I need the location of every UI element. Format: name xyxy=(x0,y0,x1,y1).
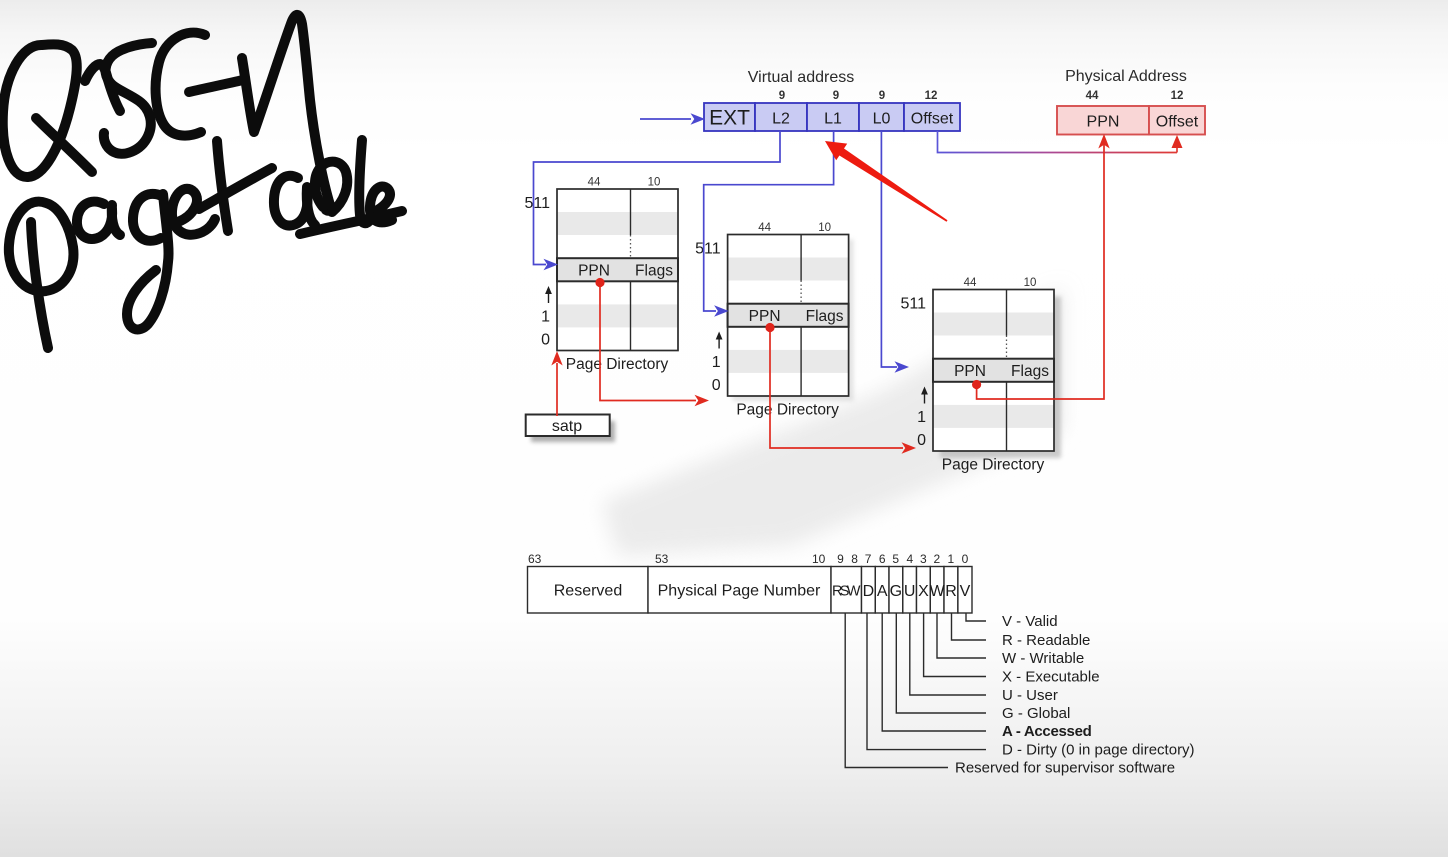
svg-text:X: X xyxy=(918,583,929,600)
svg-text:6: 6 xyxy=(879,552,886,566)
svg-text:Virtual address: Virtual address xyxy=(748,69,854,86)
svg-text:12: 12 xyxy=(1171,90,1184,102)
svg-text:U - User: U - User xyxy=(1002,687,1058,704)
svg-text:9: 9 xyxy=(779,90,785,102)
svg-text:G - Global: G - Global xyxy=(1002,705,1070,722)
svg-text:5: 5 xyxy=(892,552,899,566)
svg-text:Offset: Offset xyxy=(1156,114,1199,131)
svg-text:V - Valid: V - Valid xyxy=(1002,613,1058,630)
svg-text:U: U xyxy=(904,583,916,600)
svg-text:D - Dirty (0 in page directory: D - Dirty (0 in page directory) xyxy=(1002,742,1195,759)
svg-text:Reserved for supervisor softwa: Reserved for supervisor software xyxy=(955,760,1175,777)
svg-text:L0: L0 xyxy=(873,111,891,128)
svg-text:R: R xyxy=(945,583,957,600)
svg-text:L2: L2 xyxy=(772,111,790,128)
svg-text:3: 3 xyxy=(920,552,927,566)
svg-text:PPN: PPN xyxy=(1087,114,1120,131)
svg-text:9: 9 xyxy=(833,90,839,102)
svg-text:1: 1 xyxy=(948,552,955,566)
svg-text:RSW: RSW xyxy=(832,584,861,600)
svg-text:44: 44 xyxy=(1086,90,1099,102)
svg-text:W - Writable: W - Writable xyxy=(1002,650,1084,667)
svg-text:12: 12 xyxy=(925,90,938,102)
svg-text:W: W xyxy=(930,583,946,600)
svg-text:Physical Address: Physical Address xyxy=(1065,68,1187,85)
svg-text:satp: satp xyxy=(552,418,582,435)
svg-text:Offset: Offset xyxy=(911,111,954,128)
svg-text:R - Readable: R - Readable xyxy=(1002,632,1090,649)
svg-text:Reserved: Reserved xyxy=(554,583,622,600)
svg-text:0: 0 xyxy=(962,552,969,566)
svg-text:A: A xyxy=(877,583,888,600)
svg-text:Physical Page Number: Physical Page Number xyxy=(658,583,821,600)
svg-text:X - Executable: X - Executable xyxy=(1002,669,1100,686)
svg-text:10: 10 xyxy=(812,552,826,566)
svg-text:A - Accessed: A - Accessed xyxy=(1002,723,1092,740)
svg-text:53: 53 xyxy=(655,552,669,566)
svg-text:2: 2 xyxy=(933,552,940,566)
svg-text:D: D xyxy=(863,583,875,600)
svg-text:V: V xyxy=(960,583,971,600)
svg-text:4: 4 xyxy=(906,552,913,566)
svg-text:9: 9 xyxy=(879,90,885,102)
svg-text:G: G xyxy=(890,583,902,600)
svg-text:9: 9 xyxy=(837,552,844,566)
svg-text:EXT: EXT xyxy=(709,107,750,130)
svg-text:7: 7 xyxy=(865,552,872,566)
svg-text:8: 8 xyxy=(851,552,858,566)
svg-text:63: 63 xyxy=(528,552,542,566)
svg-text:L1: L1 xyxy=(824,111,842,128)
